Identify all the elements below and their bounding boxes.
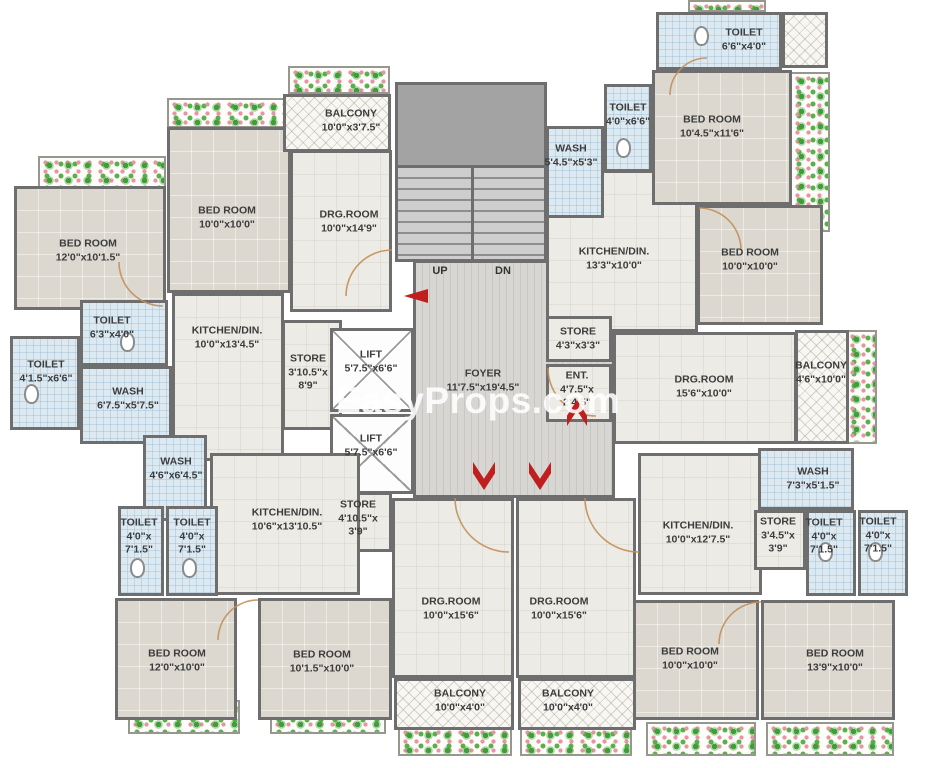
label-wash-br: WASH7'3"x5'1.5" — [775, 465, 851, 492]
label-toilet-bl-a: TOILET4'0"x 7'1.5" — [119, 517, 159, 558]
entry-arrow-left-icon — [404, 289, 428, 303]
label-balcony-b2: BALCONY10'0"x4'0" — [520, 687, 616, 714]
label-lift-2: LIFT5'7.5"x6'6" — [339, 432, 403, 459]
label-drg-b2: DRG.ROOM10'0"x15'6" — [511, 595, 607, 622]
label-toilet-bl-b: TOILET4'0"x 7'1.5" — [172, 517, 212, 558]
label-store-tl: STORE3'10.5"x 8'9" — [283, 353, 333, 394]
label-bedroom-br-2: BED ROOM13'9"x10'0" — [787, 647, 883, 674]
label-toilet-tr-top: TOILET6'6"x4'0" — [709, 26, 779, 53]
label-kitchen-br: KITCHEN/DIN.10'0"x12'7.5" — [648, 519, 748, 546]
label-bedroom-tr-1: BED ROOM10'4.5"x11'6" — [662, 113, 762, 140]
label-drg-right: DRG.ROOM15'6"x10'0" — [656, 373, 752, 400]
label-lift-1: LIFT5'7.5"x6'6" — [339, 348, 403, 375]
toilet-fixture-icon — [616, 138, 631, 158]
label-toilet-tl-a: TOILET6'3"x4'0" — [76, 314, 148, 341]
toilet-fixture-icon — [182, 558, 197, 578]
label-drg-b1: DRG.ROOM10'0"x15'6" — [403, 595, 499, 622]
floor-plan: BED ROOM12'0"x10'1.5" BED ROOM10'0"x10'0… — [0, 0, 937, 768]
label-wash-bl: WASH4'6"x6'4.5" — [141, 455, 211, 482]
label-kitchen-bl: KITCHEN/DIN.10'6"x13'10.5" — [235, 506, 339, 533]
label-bedroom-tl-2: BED ROOM10'0"x10'0" — [179, 204, 275, 231]
label-foyer: FOYER11'7.5"x19'4.5" — [428, 367, 538, 394]
label-store-br: STORE3'4.5"x 3'9" — [756, 516, 800, 557]
label-toilet-br-a: TOILET4'0"x 7'1.5" — [804, 517, 844, 558]
label-kitchen-tl: KITCHEN/DIN.10'0"x13'4.5" — [177, 324, 277, 351]
label-bedroom-tl-1: BED ROOM12'0"x10'1.5" — [40, 237, 136, 264]
label-store-right: STORE4'3"x3'3" — [546, 325, 610, 352]
toilet-fixture-icon — [130, 558, 145, 578]
label-balcony-b1: BALCONY10'0"x4'0" — [412, 687, 508, 714]
stairs-dn-label: DN — [495, 265, 511, 277]
label-bedroom-bl-1: BED ROOM12'0"x10'0" — [129, 647, 225, 674]
label-bedroom-bl-2: BED ROOM10'1.5"x10'0" — [274, 648, 370, 675]
toilet-fixture-icon — [694, 26, 709, 46]
stairs-up-label: UP — [432, 265, 447, 277]
label-kitchen-tr: KITCHEN/DIN.13'3"x10'0" — [564, 245, 664, 272]
label-wash-tl: WASH6'7.5"x5'7.5" — [88, 385, 168, 412]
label-wash-tr: WASH5'4.5"x5'3" — [536, 142, 606, 169]
label-balcony-tl: BALCONY10'0"x3'7.5" — [303, 107, 399, 134]
label-bedroom-br-1: BED ROOM10'0"x10'0" — [642, 645, 738, 672]
label-toilet-tr-a: TOILET4'0"x6'6" — [598, 101, 658, 128]
label-toilet-tl-b: TOILET4'1.5"x6'6" — [14, 358, 78, 385]
label-bedroom-tr-2: BED ROOM10'0"x10'0" — [702, 246, 798, 273]
toilet-fixture-icon — [24, 384, 39, 404]
label-balcony-right: BALCONY4'6"x10'0" — [791, 359, 851, 386]
label-toilet-br-b: TOILET4'0"x 7'1.5" — [858, 516, 898, 557]
label-drg-tl: DRG.ROOM10'0"x14'9" — [301, 208, 397, 235]
